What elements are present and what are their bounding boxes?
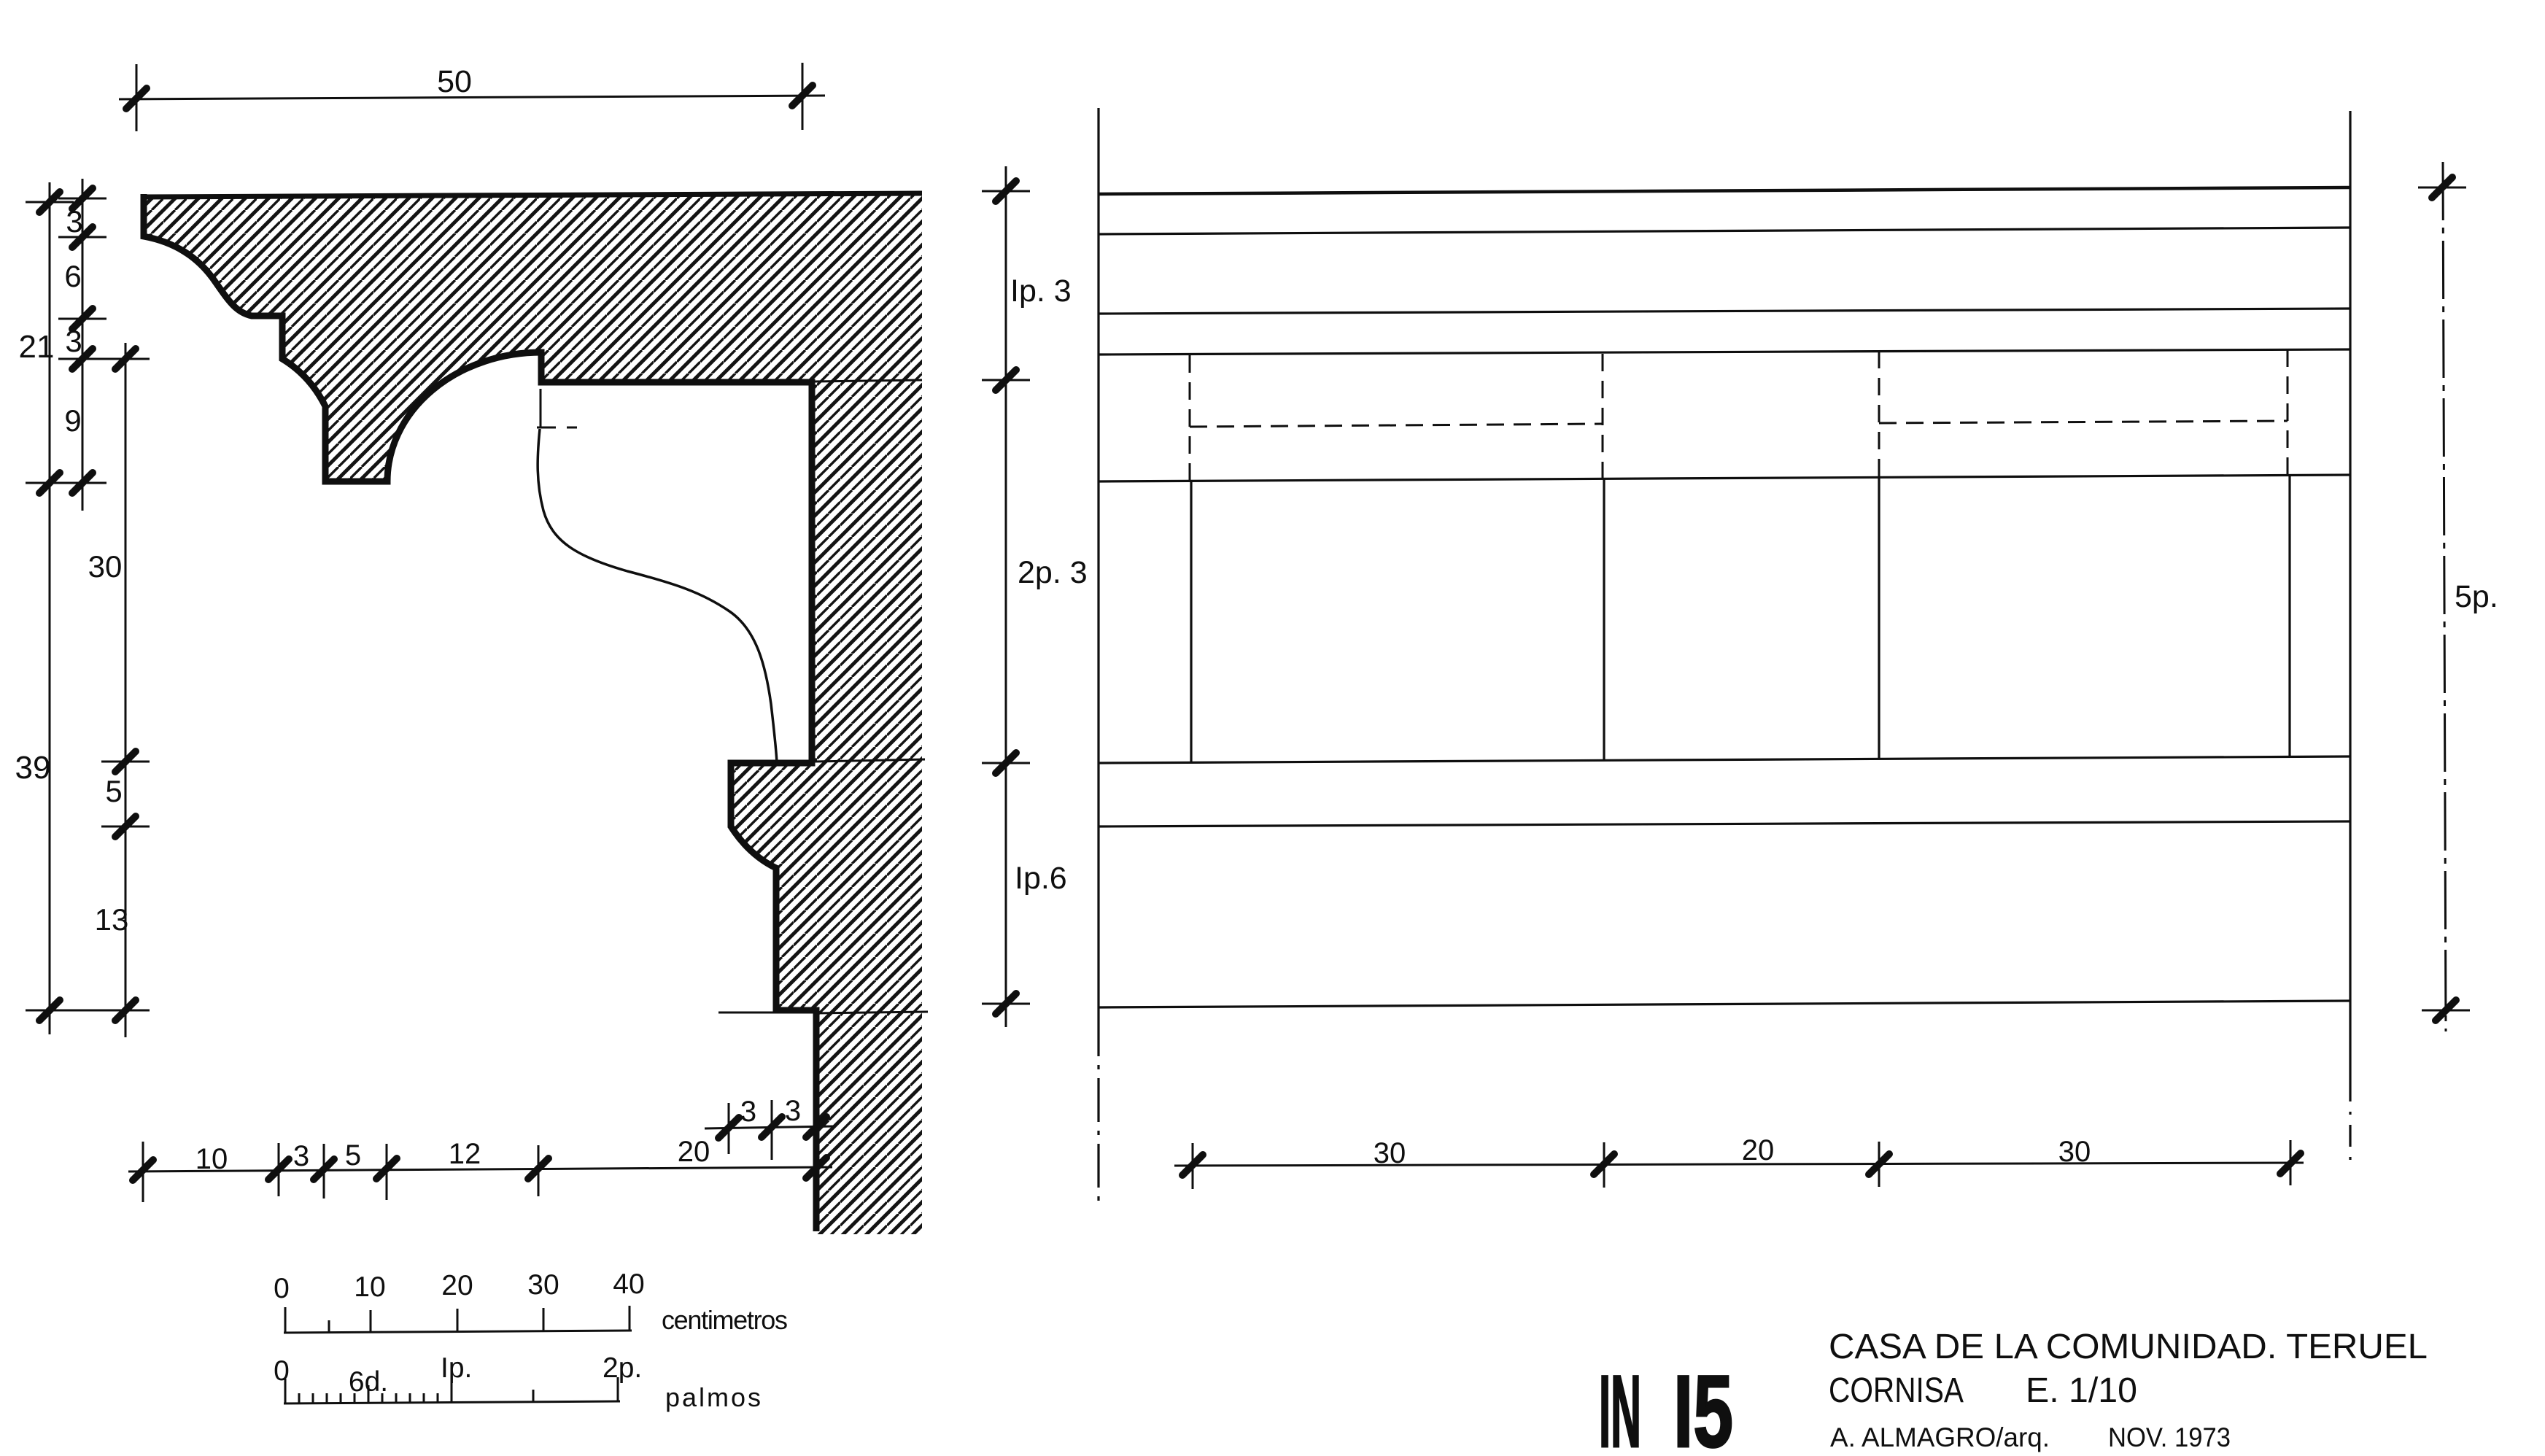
- svg-text:40: 40: [613, 1269, 644, 1300]
- svg-text:2p. 3: 2p. 3: [1018, 555, 1088, 590]
- svg-text:21: 21: [19, 329, 55, 365]
- svg-text:I5: I5: [1673, 1354, 1733, 1456]
- svg-text:3: 3: [293, 1140, 309, 1172]
- svg-text:10: 10: [354, 1271, 385, 1303]
- svg-text:12: 12: [449, 1138, 481, 1170]
- svg-text:Ip. 3: Ip. 3: [1010, 274, 1072, 309]
- svg-text:30: 30: [88, 549, 123, 584]
- svg-text:39: 39: [15, 750, 51, 786]
- svg-text:6: 6: [64, 259, 81, 293]
- svg-text:0: 0: [274, 1355, 290, 1387]
- svg-text:0: 0: [274, 1273, 290, 1304]
- svg-text:6d.: 6d.: [349, 1366, 388, 1398]
- svg-text:20: 20: [1742, 1134, 1775, 1166]
- svg-text:IN: IN: [1599, 1354, 1641, 1456]
- svg-text:3: 3: [65, 324, 82, 358]
- svg-text:Ip.: Ip.: [441, 1352, 472, 1384]
- svg-text:A. ALMAGRO/arq.: A. ALMAGRO/arq.: [1830, 1422, 2050, 1452]
- svg-text:20: 20: [441, 1270, 473, 1301]
- svg-text:30: 30: [527, 1269, 559, 1301]
- svg-text:palmos: palmos: [665, 1382, 761, 1412]
- svg-text:10: 10: [195, 1143, 228, 1175]
- svg-text:CORNISA: CORNISA: [1829, 1371, 1964, 1410]
- svg-text:Ip.6: Ip.6: [1015, 861, 1067, 896]
- svg-text:E. 1/10: E. 1/10: [2026, 1371, 2137, 1410]
- svg-text:centimetros: centimetros: [662, 1305, 788, 1335]
- svg-text:13: 13: [95, 902, 129, 937]
- svg-text:5: 5: [105, 774, 122, 808]
- svg-text:30: 30: [1374, 1137, 1406, 1169]
- svg-text:30: 30: [2058, 1136, 2091, 1168]
- svg-text:3: 3: [740, 1096, 756, 1128]
- svg-text:9: 9: [64, 403, 81, 438]
- svg-text:5: 5: [345, 1139, 361, 1172]
- svg-text:3: 3: [66, 204, 82, 239]
- svg-text:20: 20: [678, 1136, 710, 1168]
- svg-text:3: 3: [785, 1095, 801, 1127]
- svg-text:5p.: 5p.: [2455, 579, 2498, 614]
- svg-text:NOV. 1973: NOV. 1973: [2108, 1422, 2231, 1452]
- svg-text:CASA DE LA COMUNIDAD. TERUEL: CASA DE LA COMUNIDAD. TERUEL: [1829, 1328, 2428, 1366]
- svg-text:50: 50: [437, 64, 472, 99]
- svg-text:2p.: 2p.: [603, 1352, 642, 1384]
